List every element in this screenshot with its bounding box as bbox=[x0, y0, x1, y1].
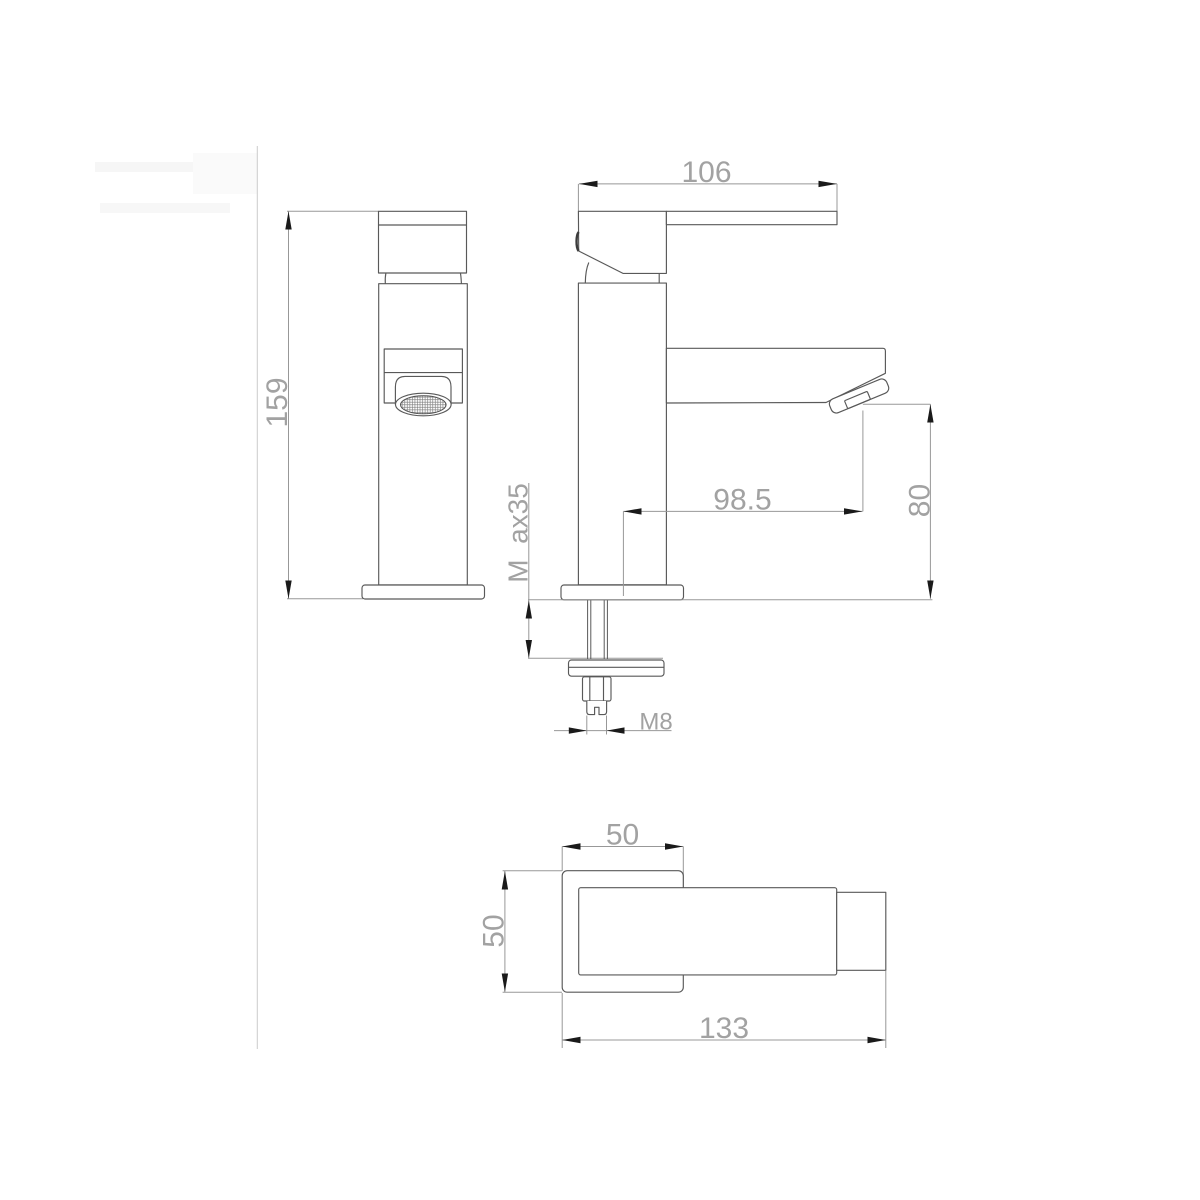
svg-text:M ax35: M ax35 bbox=[503, 483, 534, 583]
svg-text:80: 80 bbox=[904, 484, 937, 517]
svg-text:50: 50 bbox=[606, 819, 639, 852]
svg-text:50: 50 bbox=[478, 914, 511, 947]
svg-text:106: 106 bbox=[681, 156, 731, 189]
svg-text:98.5: 98.5 bbox=[713, 484, 771, 517]
svg-text:159: 159 bbox=[261, 377, 294, 427]
svg-text:133: 133 bbox=[699, 1012, 749, 1045]
svg-text:M8: M8 bbox=[639, 709, 672, 736]
